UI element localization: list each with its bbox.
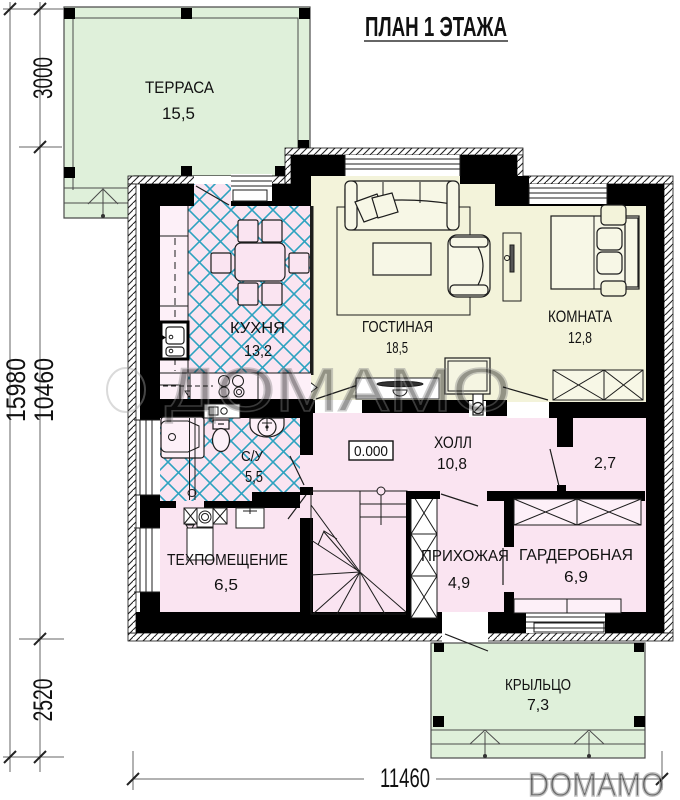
svg-text:ГОСТИНАЯ: ГОСТИНАЯ	[362, 319, 433, 336]
svg-text:6,9: 6,9	[564, 569, 588, 586]
svg-text:ТЕХПОМЕЩЕНИЕ: ТЕХПОМЕЩЕНИЕ	[167, 552, 288, 569]
svg-text:10460: 10460	[29, 358, 59, 422]
svg-text:3000: 3000	[28, 57, 58, 99]
svg-text:18,5: 18,5	[386, 340, 408, 357]
svg-text:12,8: 12,8	[568, 330, 592, 347]
svg-text:4,9: 4,9	[448, 575, 470, 592]
svg-text:С/У: С/У	[241, 448, 263, 465]
svg-text:ТЕРРАСА: ТЕРРАСА	[145, 79, 214, 97]
svg-text:DOMAMO: DOMAMO	[528, 766, 664, 800]
svg-text:6,5: 6,5	[214, 577, 238, 594]
svg-text:КУХНЯ: КУХНЯ	[230, 320, 285, 337]
svg-text:11460: 11460	[380, 763, 430, 793]
svg-text:ДОМАМО: ДОМАМО	[165, 356, 511, 424]
svg-text:10,8: 10,8	[437, 456, 467, 473]
svg-text:0.000: 0.000	[354, 443, 388, 460]
svg-text:ГАРДЕРОБНАЯ: ГАРДЕРОБНАЯ	[519, 547, 633, 564]
svg-text:7,3: 7,3	[527, 697, 549, 714]
svg-text:ХОЛЛ: ХОЛЛ	[434, 433, 472, 452]
svg-text:КРЫЛЬЦО: КРЫЛЬЦО	[505, 677, 571, 694]
svg-text:2520: 2520	[28, 679, 58, 722]
svg-text:КОМНАТА: КОМНАТА	[548, 307, 613, 326]
svg-text:15980: 15980	[1, 358, 31, 422]
svg-text:ПРИХОЖАЯ: ПРИХОЖАЯ	[421, 548, 509, 565]
svg-text:2,7: 2,7	[594, 455, 616, 472]
svg-text:ПЛАН 1 ЭТАЖА: ПЛАН 1 ЭТАЖА	[365, 11, 507, 42]
svg-text:15,5: 15,5	[162, 105, 195, 123]
svg-text:5,5: 5,5	[245, 469, 263, 486]
